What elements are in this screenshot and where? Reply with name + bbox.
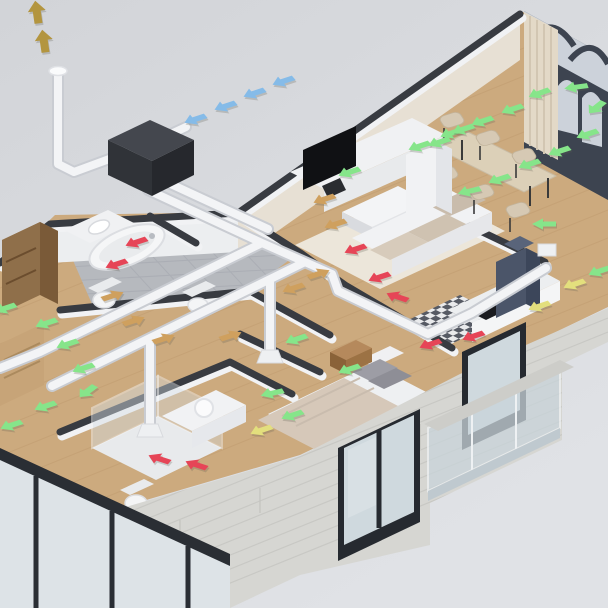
- tub-faucet: [149, 233, 155, 239]
- exhaust-stack-cap: [49, 67, 67, 76]
- ventilation-3d-visualization: [0, 0, 608, 608]
- isometric-apartment-scene: [0, 0, 608, 608]
- curtain: [524, 12, 558, 160]
- duct-vent: [257, 350, 283, 363]
- fridge-cabinet: [406, 141, 452, 220]
- duct-vent: [538, 244, 556, 256]
- duct-vent: [137, 424, 163, 437]
